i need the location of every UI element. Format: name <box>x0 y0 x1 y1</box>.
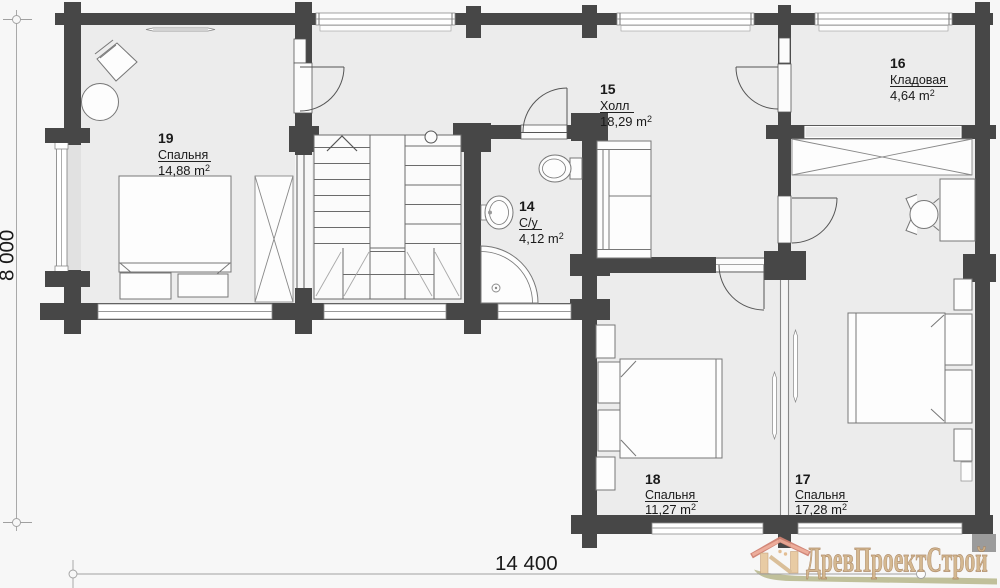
svg-text:19: 19 <box>158 130 174 146</box>
svg-text:С/у: С/у <box>519 216 539 230</box>
svg-text:8 000: 8 000 <box>0 230 19 281</box>
svg-text:ДревПроектСтрой: ДревПроектСтрой <box>806 541 988 580</box>
svg-text:15: 15 <box>600 81 616 97</box>
svg-text:Спальня: Спальня <box>645 488 695 502</box>
svg-text:18,29 m2: 18,29 m2 <box>600 114 652 129</box>
svg-text:11,27 m2: 11,27 m2 <box>645 502 696 517</box>
svg-text:14 400: 14 400 <box>495 552 558 575</box>
svg-text:4,12 m2: 4,12 m2 <box>519 231 564 246</box>
svg-text:17: 17 <box>795 471 811 487</box>
svg-text:16: 16 <box>890 55 906 71</box>
svg-text:Холл: Холл <box>600 99 629 113</box>
svg-text:14,88 m2: 14,88 m2 <box>158 163 210 178</box>
svg-text:18: 18 <box>645 471 661 487</box>
svg-text:Спальня: Спальня <box>795 488 845 502</box>
svg-text:Кладовая: Кладовая <box>890 73 946 87</box>
svg-text:Спальня: Спальня <box>158 148 208 162</box>
svg-text:17,28 m2: 17,28 m2 <box>795 502 847 517</box>
svg-text:14: 14 <box>519 198 535 214</box>
svg-text:4,64 m2: 4,64 m2 <box>890 88 935 103</box>
